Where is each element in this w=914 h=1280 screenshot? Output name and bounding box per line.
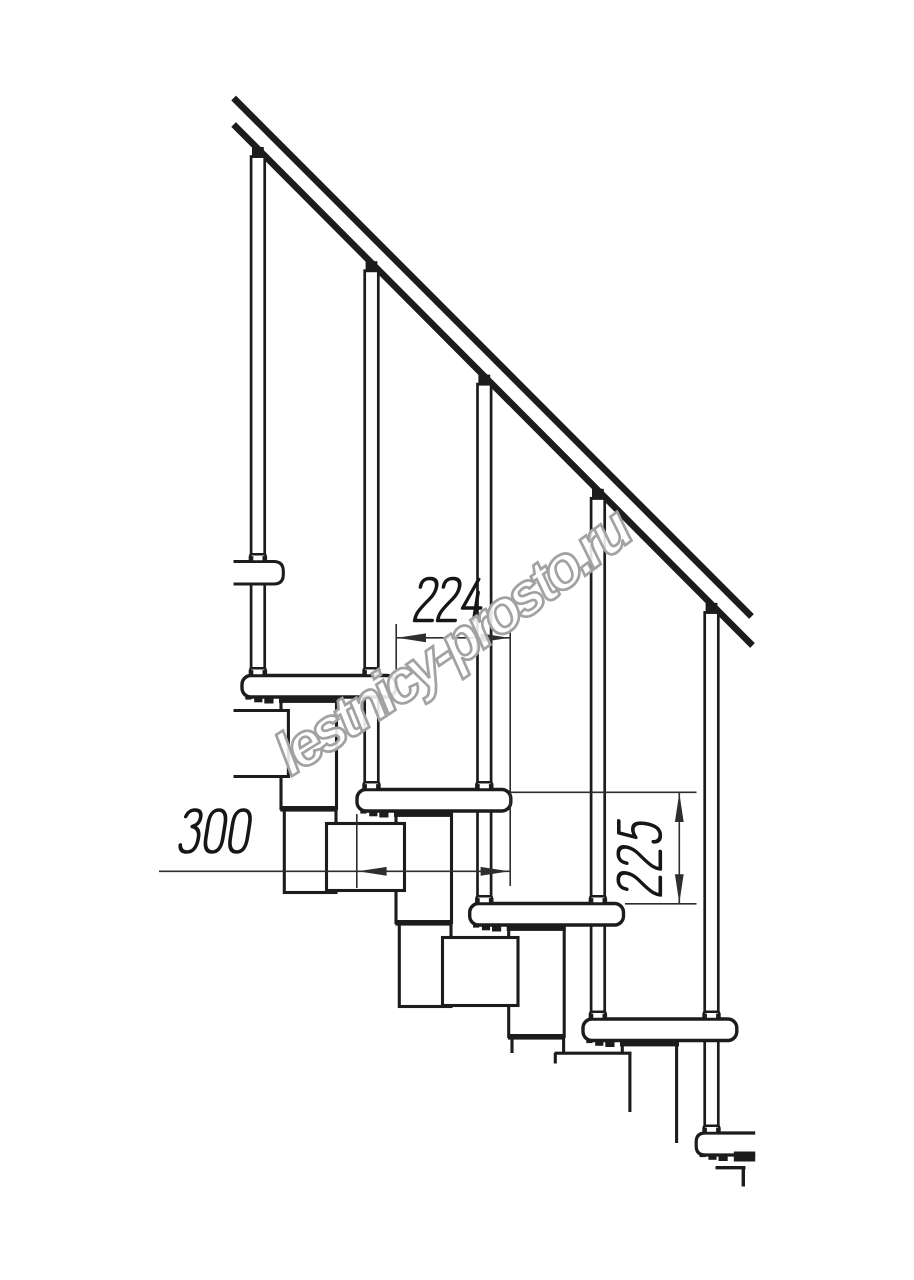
svg-text:lestnicy-prosto.ru: lestnicy-prosto.ru xyxy=(263,494,645,788)
